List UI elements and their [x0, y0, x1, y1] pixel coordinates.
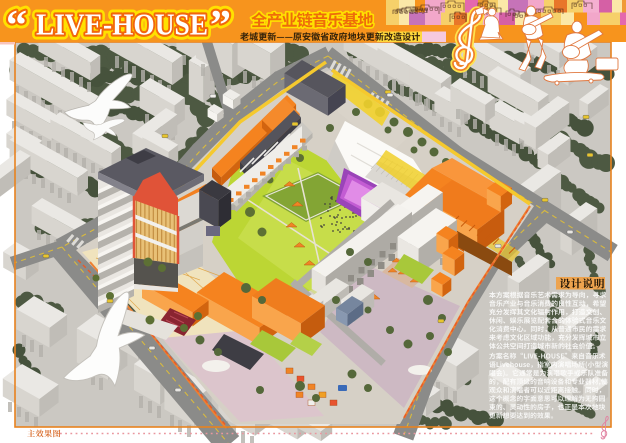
svg-text:“: “	[6, 3, 27, 49]
svg-text:”: ”	[210, 3, 231, 49]
svg-text:LIVE-HOUSE: LIVE-HOUSE	[36, 7, 208, 42]
